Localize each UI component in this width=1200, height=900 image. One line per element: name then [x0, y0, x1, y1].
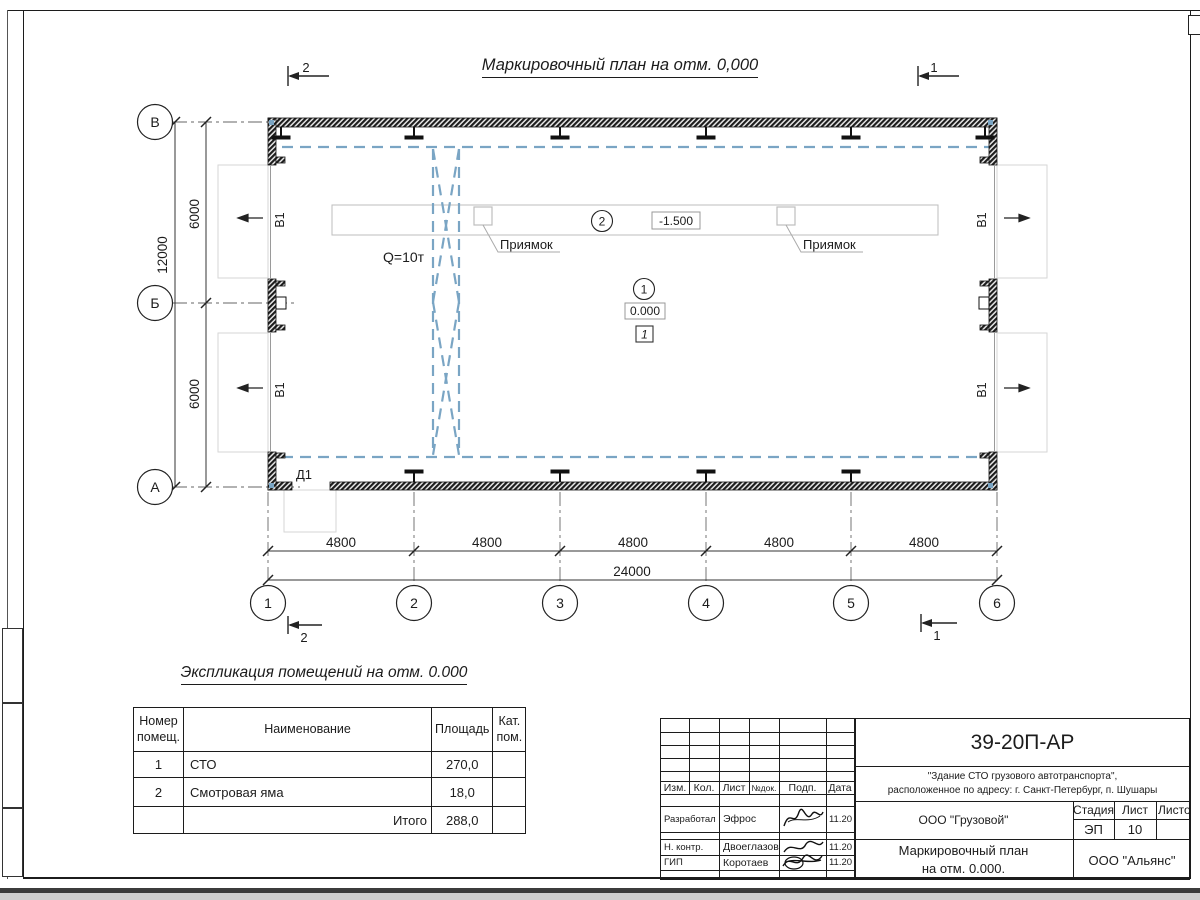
section-mark-bottom-left: 2 [300, 630, 307, 645]
explication-total-label: Итого [184, 807, 432, 834]
dimension-lines [175, 122, 997, 580]
rev-header-ndoc: №док. [749, 781, 779, 794]
sheet-title: Маркировочный план на отм. 0.000. [854, 839, 1073, 880]
sheets-label: Листов [1156, 801, 1190, 819]
role-gip-name: Коротаев [720, 855, 779, 870]
pit-recess-1 [474, 207, 492, 225]
role-gip-date: 11.20 [827, 855, 854, 870]
rev-header-list: Лист [719, 781, 749, 794]
door-label: Д1 [296, 467, 312, 482]
floor-type-mark: 1 [641, 328, 648, 342]
pit-room-number: 2 [599, 215, 606, 229]
pit-recess-2 [777, 207, 795, 225]
role-ncontrol-date: 11.20 [827, 839, 854, 855]
section-mark-bottom-right: 1 [933, 628, 940, 643]
sheet-value: 10 [1114, 819, 1156, 839]
dim-side-2: 6000 [187, 379, 202, 409]
explication-header-num: Номерпомещ. [134, 708, 184, 752]
rev-header-data: Дата [826, 781, 854, 794]
axis-lines [173, 122, 997, 586]
section-mark-top-left: 2 [302, 60, 309, 75]
doc-number: 39-20П-АР [854, 719, 1190, 766]
col-axis-5: 5 [847, 595, 855, 611]
drawing-canvas: Маркировочный план на отм. 0,000 [0, 0, 1200, 900]
dim-total: 24000 [613, 564, 651, 579]
sheet-edge-shadow [0, 888, 1200, 893]
gate-label-4: В1 [975, 382, 989, 397]
role-gip-label: ГИП [661, 855, 719, 870]
stage-value: ЭП [1073, 819, 1114, 839]
col-axis-2: 2 [410, 595, 418, 611]
dim-bay-4: 4800 [764, 535, 794, 550]
row-axis-v: В [150, 114, 159, 130]
dim-side-total: 12000 [155, 236, 170, 274]
dimension-ticks [170, 117, 1002, 585]
crane-symbol [282, 147, 994, 457]
role-ncontrol-name: Двоеглазов [720, 839, 779, 855]
col-axis-1: 1 [264, 595, 272, 611]
rev-header-podp: Подп. [779, 781, 826, 794]
client-name: ООО "Грузовой" [854, 801, 1073, 839]
drawing-sheet: Маркировочный план на отм. 0,000 [0, 0, 1200, 888]
title-block: Изм. Кол. Лист №док. Подп. Дата Разработ… [660, 718, 1190, 880]
signature-icon-developer [780, 804, 826, 832]
gate-label-3: В1 [975, 212, 989, 227]
role-ncontrol-label: Н. контр. [661, 839, 719, 855]
explication-total-value: 288,0 [432, 807, 493, 834]
explication-total-row: Итого 288,0 [134, 807, 526, 834]
row-axis-a: А [150, 479, 160, 495]
floor-plan: В Б А 1 2 3 4 5 6 4800 4800 4800 4800 48… [0, 0, 1200, 660]
col-axis-3: 3 [556, 595, 564, 611]
crane-capacity-label: Q=10т [383, 249, 425, 265]
dim-bay-2: 4800 [472, 535, 502, 550]
explication-header-cat: Кат.пом. [493, 708, 526, 752]
floor-room-number: 1 [641, 283, 648, 297]
floor-level-value: 0.000 [630, 304, 660, 318]
stage-label: Стадия [1073, 801, 1114, 819]
gate-label-2: В1 [273, 382, 287, 397]
col-axis-4: 4 [702, 595, 710, 611]
object-description: "Здание СТО грузового автотранспорта", р… [854, 766, 1190, 801]
explication-title: Экспликация помещений на отм. 0.000 [133, 664, 515, 685]
explication-table: Номерпомещ. Наименование Площадь Кат.пом… [133, 707, 526, 834]
explication-row-2: 2 Смотровая яма 18,0 [134, 778, 526, 807]
pit-level-value: -1.500 [659, 214, 693, 228]
rev-header-izm: Изм. [661, 781, 689, 794]
axis-circles [138, 105, 1015, 621]
col-axis-6: 6 [993, 595, 1001, 611]
role-developer-label: Разработал [661, 806, 719, 832]
signature-icon-ncontrol-gip [780, 838, 826, 872]
filing-box-3 [2, 808, 23, 877]
explication-row-1: 1 СТО 270,0 [134, 752, 526, 778]
dim-side-1: 6000 [187, 199, 202, 229]
row-axis-b: Б [150, 295, 159, 311]
floor-marker-group: 1 0.000 1 [625, 279, 665, 343]
role-developer-date: 11.20 [827, 806, 854, 832]
dim-bay-5: 4800 [909, 535, 939, 550]
company-name: ООО "Альянс" [1073, 839, 1190, 880]
role-developer-name: Эфрос [720, 806, 779, 832]
dim-bay-3: 4800 [618, 535, 648, 550]
gate-label-1: В1 [273, 212, 287, 227]
filing-box-2 [2, 703, 23, 808]
rev-header-kol: Кол. [689, 781, 719, 794]
dim-bay-1: 4800 [326, 535, 356, 550]
pit-recess-label-1: Приямок [500, 237, 553, 252]
pit-recess-label-2: Приямок [803, 237, 856, 252]
section-mark-top-right: 1 [930, 60, 937, 75]
explication-header-name: Наименование [184, 708, 432, 752]
sheet-label: Лист [1114, 801, 1156, 819]
explication-header-area: Площадь [432, 708, 493, 752]
